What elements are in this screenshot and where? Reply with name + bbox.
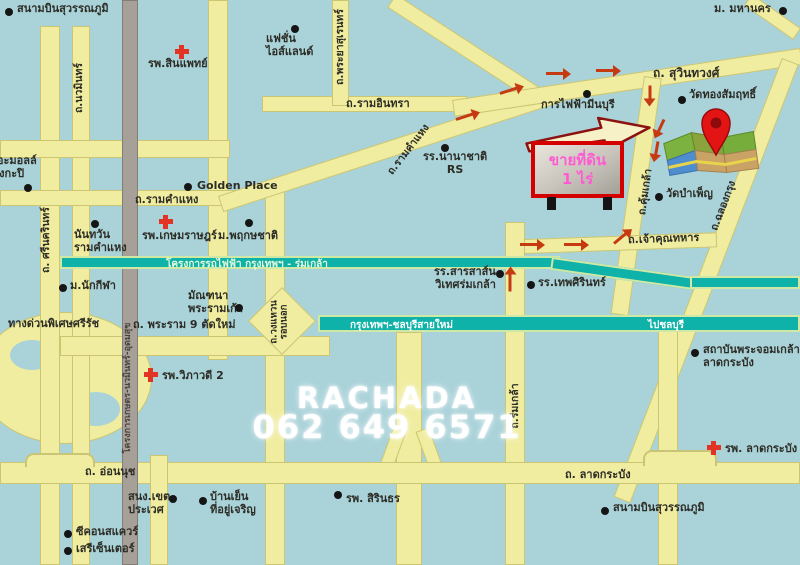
place-label-seri-center: เสรีเซ็นเตอร์: [76, 543, 135, 556]
place-label-latkrabang-hospital: รพ. ลาดกระบัง: [725, 443, 797, 456]
place-label-wat-thong: วัดทองสัมฤทธิ์: [689, 89, 756, 102]
route-arrow: [509, 274, 512, 292]
sign-leg: [547, 197, 556, 210]
road-ring: [265, 188, 285, 565]
rail-project-label: โครงการรถไฟฟ้า กรุงเทพฯ - ร่มเกล้า: [166, 257, 328, 272]
place-dot-mall-bangkapi: [24, 184, 32, 192]
place-label-airport-bottom: สนามบินสุวรรณภูมิ: [613, 502, 705, 515]
road-label-ring-road: ถ.วงแหวน รอบนอก: [270, 300, 291, 344]
place-dot-airport-top: [5, 8, 13, 16]
route-arrow: [564, 243, 582, 246]
place-dot-nakkila: [59, 284, 67, 292]
place-dot-wat-thong: [678, 96, 686, 104]
place-dot-baan-yen: [199, 497, 207, 505]
road-label-expressway: ทางด่วนพิเศษศรีรัช: [8, 318, 99, 331]
road-label-phraya-suren: ถ.พระยาสุเรนทร์: [335, 9, 347, 85]
place-dot-manthana: [235, 304, 243, 312]
place-label-sirindhorn: รพ. สิรินธร: [346, 493, 400, 506]
canal-band-rail-project-east: [690, 276, 800, 289]
place-label-fashion-island: แฟชั่น ไอส์แลนด์: [266, 33, 313, 58]
place-label-kmitl: สถาบันพระจอมเกล้า ลาดกระบัง: [703, 344, 800, 369]
overpass: [643, 450, 717, 466]
hospital-cross-icon: [144, 368, 158, 382]
hospital-cross-icon: [159, 215, 173, 229]
for-sale-sign: ขายที่ดิน 1 ไร่: [531, 141, 624, 198]
place-dot-golden-place: [184, 183, 192, 191]
place-label-golden-place: Golden Place: [197, 180, 278, 193]
place-dot-sarasas: [496, 270, 504, 278]
route-arrow: [546, 72, 564, 75]
road-label-chao-khun-thahan: ถ.เจ้าคุณทหาร: [628, 232, 700, 247]
to-chonburi-label: ไปชลบุรี: [648, 318, 684, 333]
place-dot-seri-center: [64, 547, 72, 555]
place-dot-thepsirin: [527, 281, 535, 289]
sign-leg: [603, 197, 612, 210]
hospital-cross-icon: [707, 441, 721, 455]
place-label-baan-yen: บ้านเย็น ที่อยู่เจริญ: [210, 491, 256, 516]
place-label-mahanakorn: ม. มหานคร: [714, 3, 771, 16]
place-dot-prawet-office: [169, 495, 177, 503]
route-arrow: [649, 86, 652, 100]
place-label-phruekchat: ม.พฤกษชาติ: [218, 230, 278, 243]
watermark-phone: 062 649 6571: [253, 408, 522, 446]
road-label-ramkhamhaeng: ถ.รามคำแหง: [135, 194, 198, 207]
place-label-nantawan: นันทวัน รามคำแหง: [74, 229, 127, 254]
place-label-mall-bangkapi: เดอะมอลล์ บางกะปิ: [0, 155, 37, 180]
place-label-kasemrad: รพ.เกษมราษฎร์: [142, 230, 217, 243]
place-dot-sirindhorn: [334, 491, 342, 499]
place-dot-mahanakorn: [779, 7, 787, 15]
place-label-seacon: ซีคอนสแควร์: [76, 526, 138, 539]
road-label-onnut: ถ. อ่อนนุช: [85, 466, 135, 479]
place-label-sarasas: รร.สารสาส์น วิเทศร่มเกล้า: [434, 266, 496, 291]
road-kaset-nawamin-gray: [122, 0, 138, 565]
place-label-airport-top: สนามบินสุวรรณภูมิ: [17, 3, 109, 16]
road-label-ram-inthra: ถ.รามอินทรา: [346, 98, 410, 111]
road-label-lat-krabang: ถ. ลาดกระบัง: [565, 469, 631, 482]
place-dot-phruekchat: [245, 219, 253, 227]
road-label-kaset-project: โครงการเกษตร-นวมินทร์-อุดมสุข: [124, 323, 134, 454]
location-pin-icon: [698, 107, 734, 157]
place-dot-kmitl: [691, 349, 699, 357]
place-dot-minburi-electricity: [583, 90, 591, 98]
place-label-sinphaet: รพ.สินแพทย์: [148, 58, 208, 71]
road-v-lat-krabang-link: [658, 331, 678, 565]
road-label-srinagarindra: ถ. ศรีนครินทร์: [41, 207, 53, 273]
road-srinagarindra: [40, 26, 60, 565]
route-arrow: [520, 243, 538, 246]
place-label-rs-school: รร.นานาชาติ RS: [423, 151, 487, 176]
place-label-viphavadi2: รพ.วิภาวดี 2: [162, 370, 224, 383]
place-dot-airport-bottom: [601, 507, 609, 515]
motorway-label: กรุงเทพฯ-ชลบุรีสายใหม่: [350, 318, 453, 333]
place-dot-wat-bamphen: [655, 193, 663, 201]
for-sale-sign-line2: 1 ไร่: [562, 170, 593, 189]
road-label-suwinthawong: ถ. สุวินทวงศ์: [653, 67, 719, 81]
place-label-manthana: มัณฑนา พระรามเก้า: [188, 290, 243, 315]
place-dot-nantawan: [91, 220, 99, 228]
road-label-nawamin: ถ.นวมินทร์: [74, 63, 86, 113]
route-arrow: [596, 69, 614, 72]
for-sale-sign-line1: ขายที่ดิน: [549, 151, 606, 170]
map-canvas: โครงการรถไฟฟ้า กรุงเทพฯ - ร่มเกล้า กรุงเ…: [0, 0, 800, 565]
place-label-minburi-electricity: การไฟฟ้ามีนบุรี: [541, 99, 615, 112]
place-label-prawet-office: สนง.เขต ประเวศ: [128, 491, 170, 516]
place-label-nakkila: ม.นักกีฬา: [70, 280, 116, 293]
place-label-thepsirin: รร.เทพศิรินทร์: [538, 277, 606, 290]
place-label-wat-bamphen: วัดบำเพ็ญ: [666, 188, 713, 201]
place-dot-seacon: [64, 530, 72, 538]
road-label-rama9-new: ถ. พระราม 9 ตัดใหม่: [133, 319, 236, 332]
